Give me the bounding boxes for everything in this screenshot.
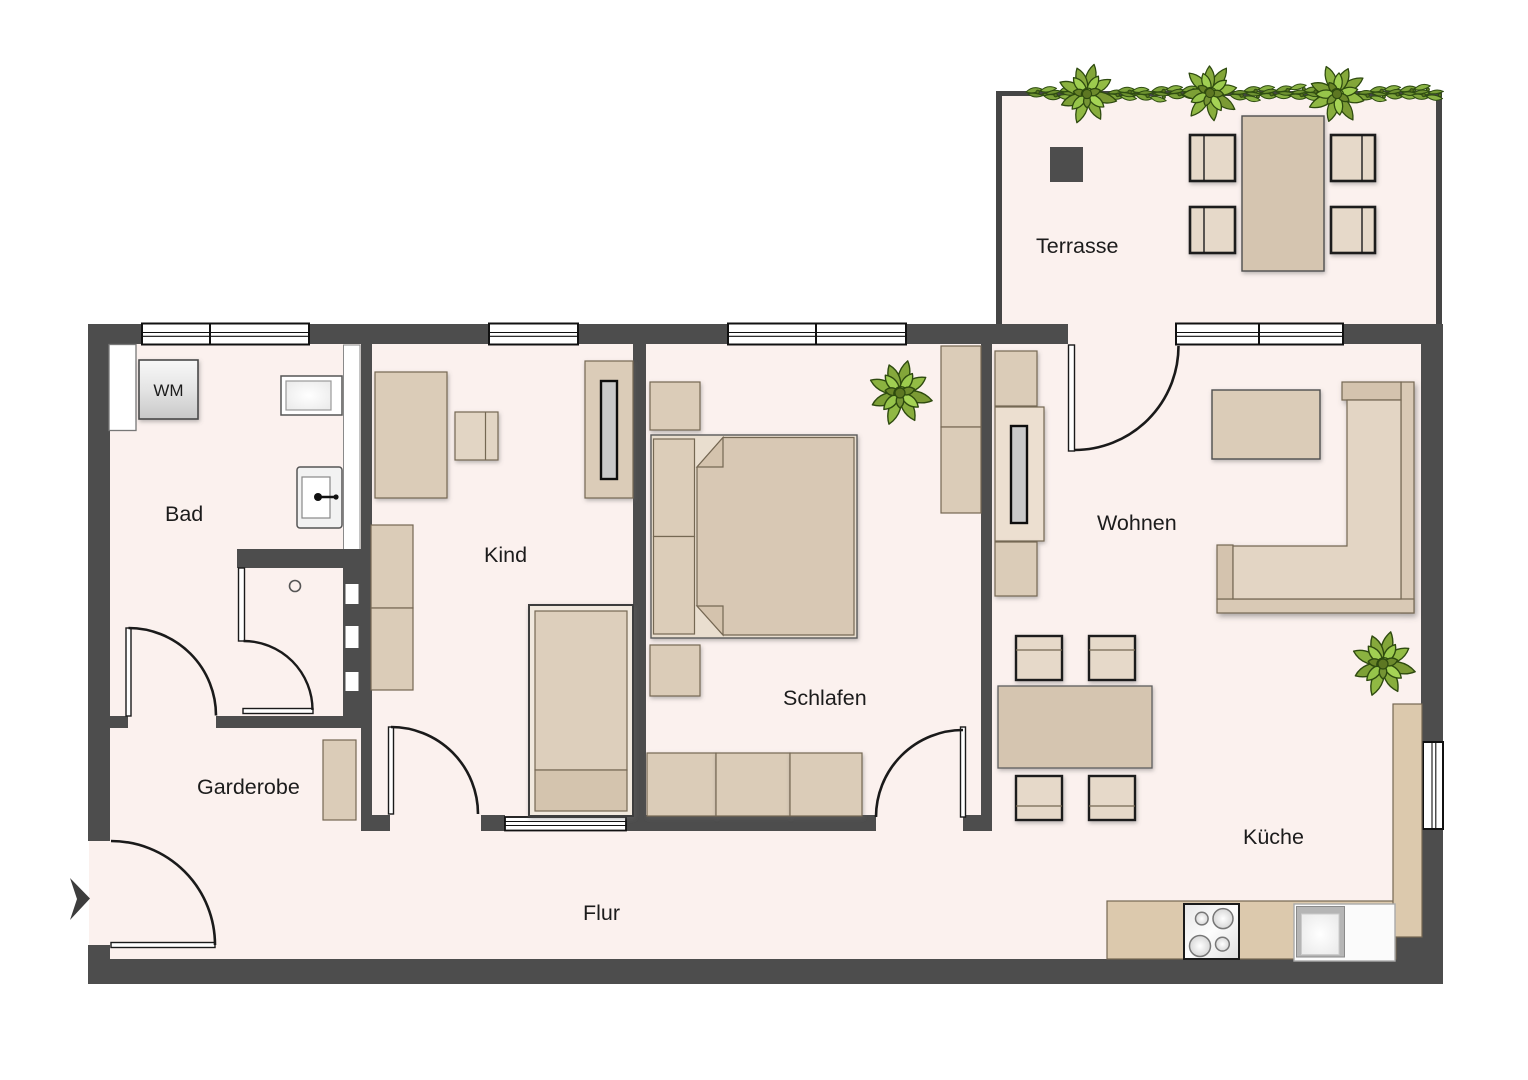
svg-text:Terrasse: Terrasse: [1036, 234, 1118, 258]
svg-text:WM: WM: [153, 381, 183, 400]
svg-text:Flur: Flur: [583, 901, 620, 925]
svg-text:Garderobe: Garderobe: [197, 775, 300, 799]
svg-text:Schlafen: Schlafen: [783, 686, 867, 710]
svg-text:Küche: Küche: [1243, 825, 1304, 849]
svg-text:Kind: Kind: [484, 543, 527, 567]
svg-text:Bad: Bad: [165, 502, 203, 526]
svg-text:Wohnen: Wohnen: [1097, 511, 1177, 535]
